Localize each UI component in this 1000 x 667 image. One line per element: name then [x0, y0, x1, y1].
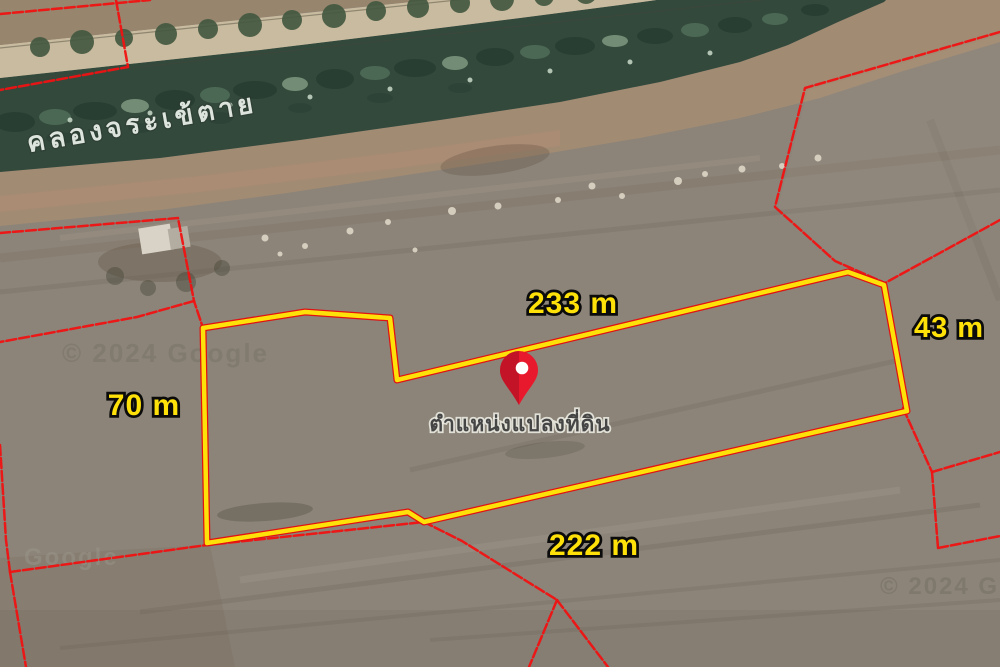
measurement-label-top: 233 m — [528, 287, 618, 320]
watermark-bottom-right: © 2024 G — [880, 573, 999, 600]
measurement-label-right: 43 m — [914, 312, 984, 344]
measurement-label-bottom: 222 m — [549, 529, 639, 562]
plot-position-label: ตำแหน่งแปลงที่ดิน — [429, 408, 610, 436]
measurement-label-left: 70 m — [108, 389, 180, 422]
map-viewport[interactable]: © 2024 Google Google © 2024 G 233 m 43 m… — [0, 0, 1000, 667]
watermark-center-left: © 2024 Google — [62, 338, 269, 368]
